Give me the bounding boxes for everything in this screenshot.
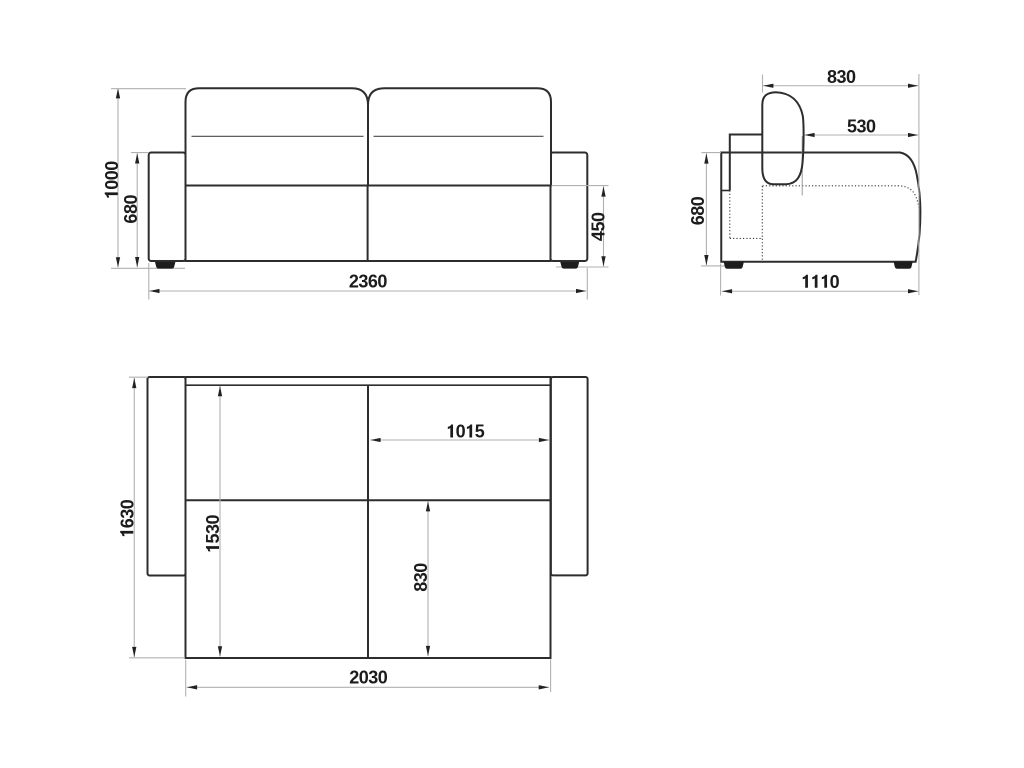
svg-text:0: 0 <box>102 170 122 180</box>
svg-text:0: 0 <box>102 161 122 171</box>
svg-text:2360: 2360 <box>349 272 388 292</box>
svg-text:2030: 2030 <box>349 668 388 688</box>
svg-text:680: 680 <box>121 195 141 224</box>
svg-text:830: 830 <box>411 563 431 592</box>
svg-text:0: 0 <box>830 272 840 292</box>
svg-text:680: 680 <box>688 196 708 225</box>
svg-text:0: 0 <box>102 180 122 190</box>
svg-text:0: 0 <box>117 499 137 509</box>
svg-text:450: 450 <box>588 212 608 241</box>
svg-text:530: 530 <box>847 117 876 137</box>
svg-text:3: 3 <box>203 524 223 534</box>
svg-text:5: 5 <box>475 422 485 442</box>
svg-text:0: 0 <box>203 514 223 524</box>
svg-text:830: 830 <box>827 67 856 87</box>
svg-text:5: 5 <box>203 534 223 544</box>
svg-text:3: 3 <box>117 509 137 519</box>
svg-text:0: 0 <box>456 422 466 442</box>
svg-text:6: 6 <box>117 518 137 528</box>
